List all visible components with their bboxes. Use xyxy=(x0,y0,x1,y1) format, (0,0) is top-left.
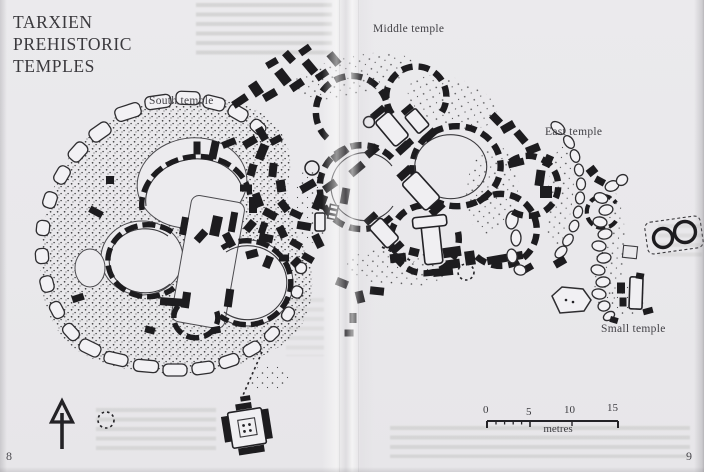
label-small-temple: Small temple xyxy=(601,323,666,335)
scale-tick-0: 0 xyxy=(483,404,489,416)
page-number-right: 9 xyxy=(686,449,692,464)
north-arrow-icon xyxy=(52,401,73,449)
page-title-line-3: TEMPLES xyxy=(13,55,132,77)
small-temple-plan xyxy=(552,165,704,324)
dotted-pit-marker xyxy=(98,412,114,428)
page-title-line-1: TARXIEN xyxy=(13,11,132,33)
book-spread: TARXIEN PREHISTORIC TEMPLES South temple… xyxy=(0,0,704,472)
scale-tick-15: 15 xyxy=(607,402,618,414)
entrance-structure xyxy=(218,393,274,458)
label-middle-temple: Middle temple xyxy=(373,23,444,35)
scale-unit-label: metres xyxy=(518,423,598,435)
south-temple-plan xyxy=(35,91,313,402)
page-title: TARXIEN PREHISTORIC TEMPLES xyxy=(13,11,132,77)
page-number-left: 8 xyxy=(6,449,12,464)
scale-tick-10: 10 xyxy=(564,404,575,416)
page-title-line-2: PREHISTORIC xyxy=(13,33,132,55)
scale-tick-5: 5 xyxy=(526,406,532,418)
label-east-temple: East temple xyxy=(545,126,602,138)
label-south-temple: South temple xyxy=(149,95,214,107)
